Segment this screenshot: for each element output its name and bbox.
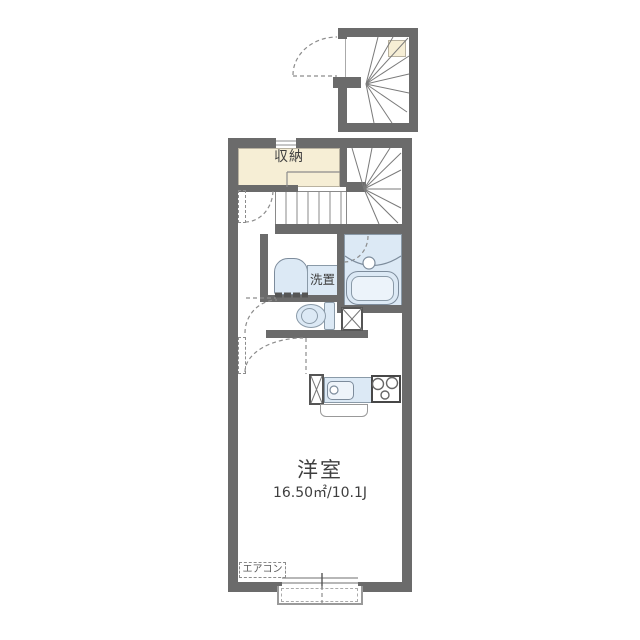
duct-icon xyxy=(341,307,363,331)
wall xyxy=(260,234,268,302)
vanity-icon xyxy=(274,258,308,295)
balcony-inner xyxy=(281,588,358,602)
wall xyxy=(228,138,412,148)
wall-stub xyxy=(333,77,361,88)
aircon-label: エアコン xyxy=(239,564,286,575)
kitchen-sink-icon xyxy=(327,381,354,400)
wall xyxy=(260,295,340,302)
stove-icon xyxy=(371,375,401,403)
wall xyxy=(402,138,412,592)
door-leaf xyxy=(238,190,246,223)
wall xyxy=(228,138,238,592)
room-name-label: 洋室 xyxy=(250,459,390,482)
wall xyxy=(409,28,418,132)
wall xyxy=(266,330,368,338)
wall xyxy=(338,28,418,37)
counter-overhang xyxy=(320,404,368,417)
toilet-bowl-inner xyxy=(301,308,318,324)
wall xyxy=(338,123,418,132)
entry-door-arc xyxy=(293,37,337,76)
bathtub-inner xyxy=(351,276,394,301)
window xyxy=(276,138,296,148)
upper-stairwell-corner-pad xyxy=(388,40,406,57)
wall xyxy=(275,224,402,234)
door-leaf xyxy=(238,337,246,374)
floorplan: 収納 洗置 洋室 16.50㎡/10.1J エアコン xyxy=(0,0,640,640)
room-size-label: 16.50㎡/10.1J xyxy=(250,486,390,501)
refrigerator-space-icon xyxy=(309,374,324,405)
stairs-straight xyxy=(275,191,347,225)
laundry-label: 洗置 xyxy=(307,273,338,287)
stair-landing xyxy=(346,182,366,192)
closet-label: 収納 xyxy=(254,150,324,165)
wall xyxy=(338,28,347,39)
